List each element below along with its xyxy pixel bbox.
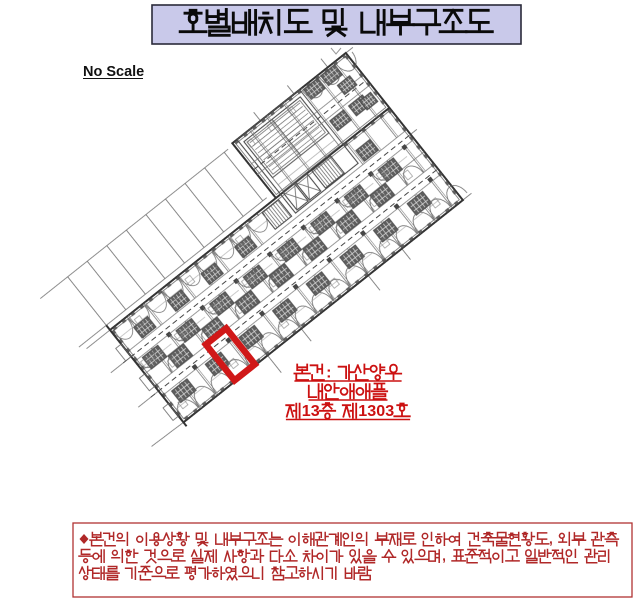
svg-text:1: 1 <box>358 402 367 420</box>
svg-text:3: 3 <box>385 402 394 420</box>
svg-text:,: , <box>442 549 446 564</box>
svg-text:3: 3 <box>367 402 376 420</box>
svg-text::: : <box>326 364 331 382</box>
svg-text:,: , <box>549 532 553 547</box>
svg-text:No Scale: No Scale <box>83 64 144 80</box>
svg-text:1: 1 <box>302 402 311 420</box>
svg-text:0: 0 <box>376 402 385 420</box>
svg-text:3: 3 <box>311 402 320 420</box>
